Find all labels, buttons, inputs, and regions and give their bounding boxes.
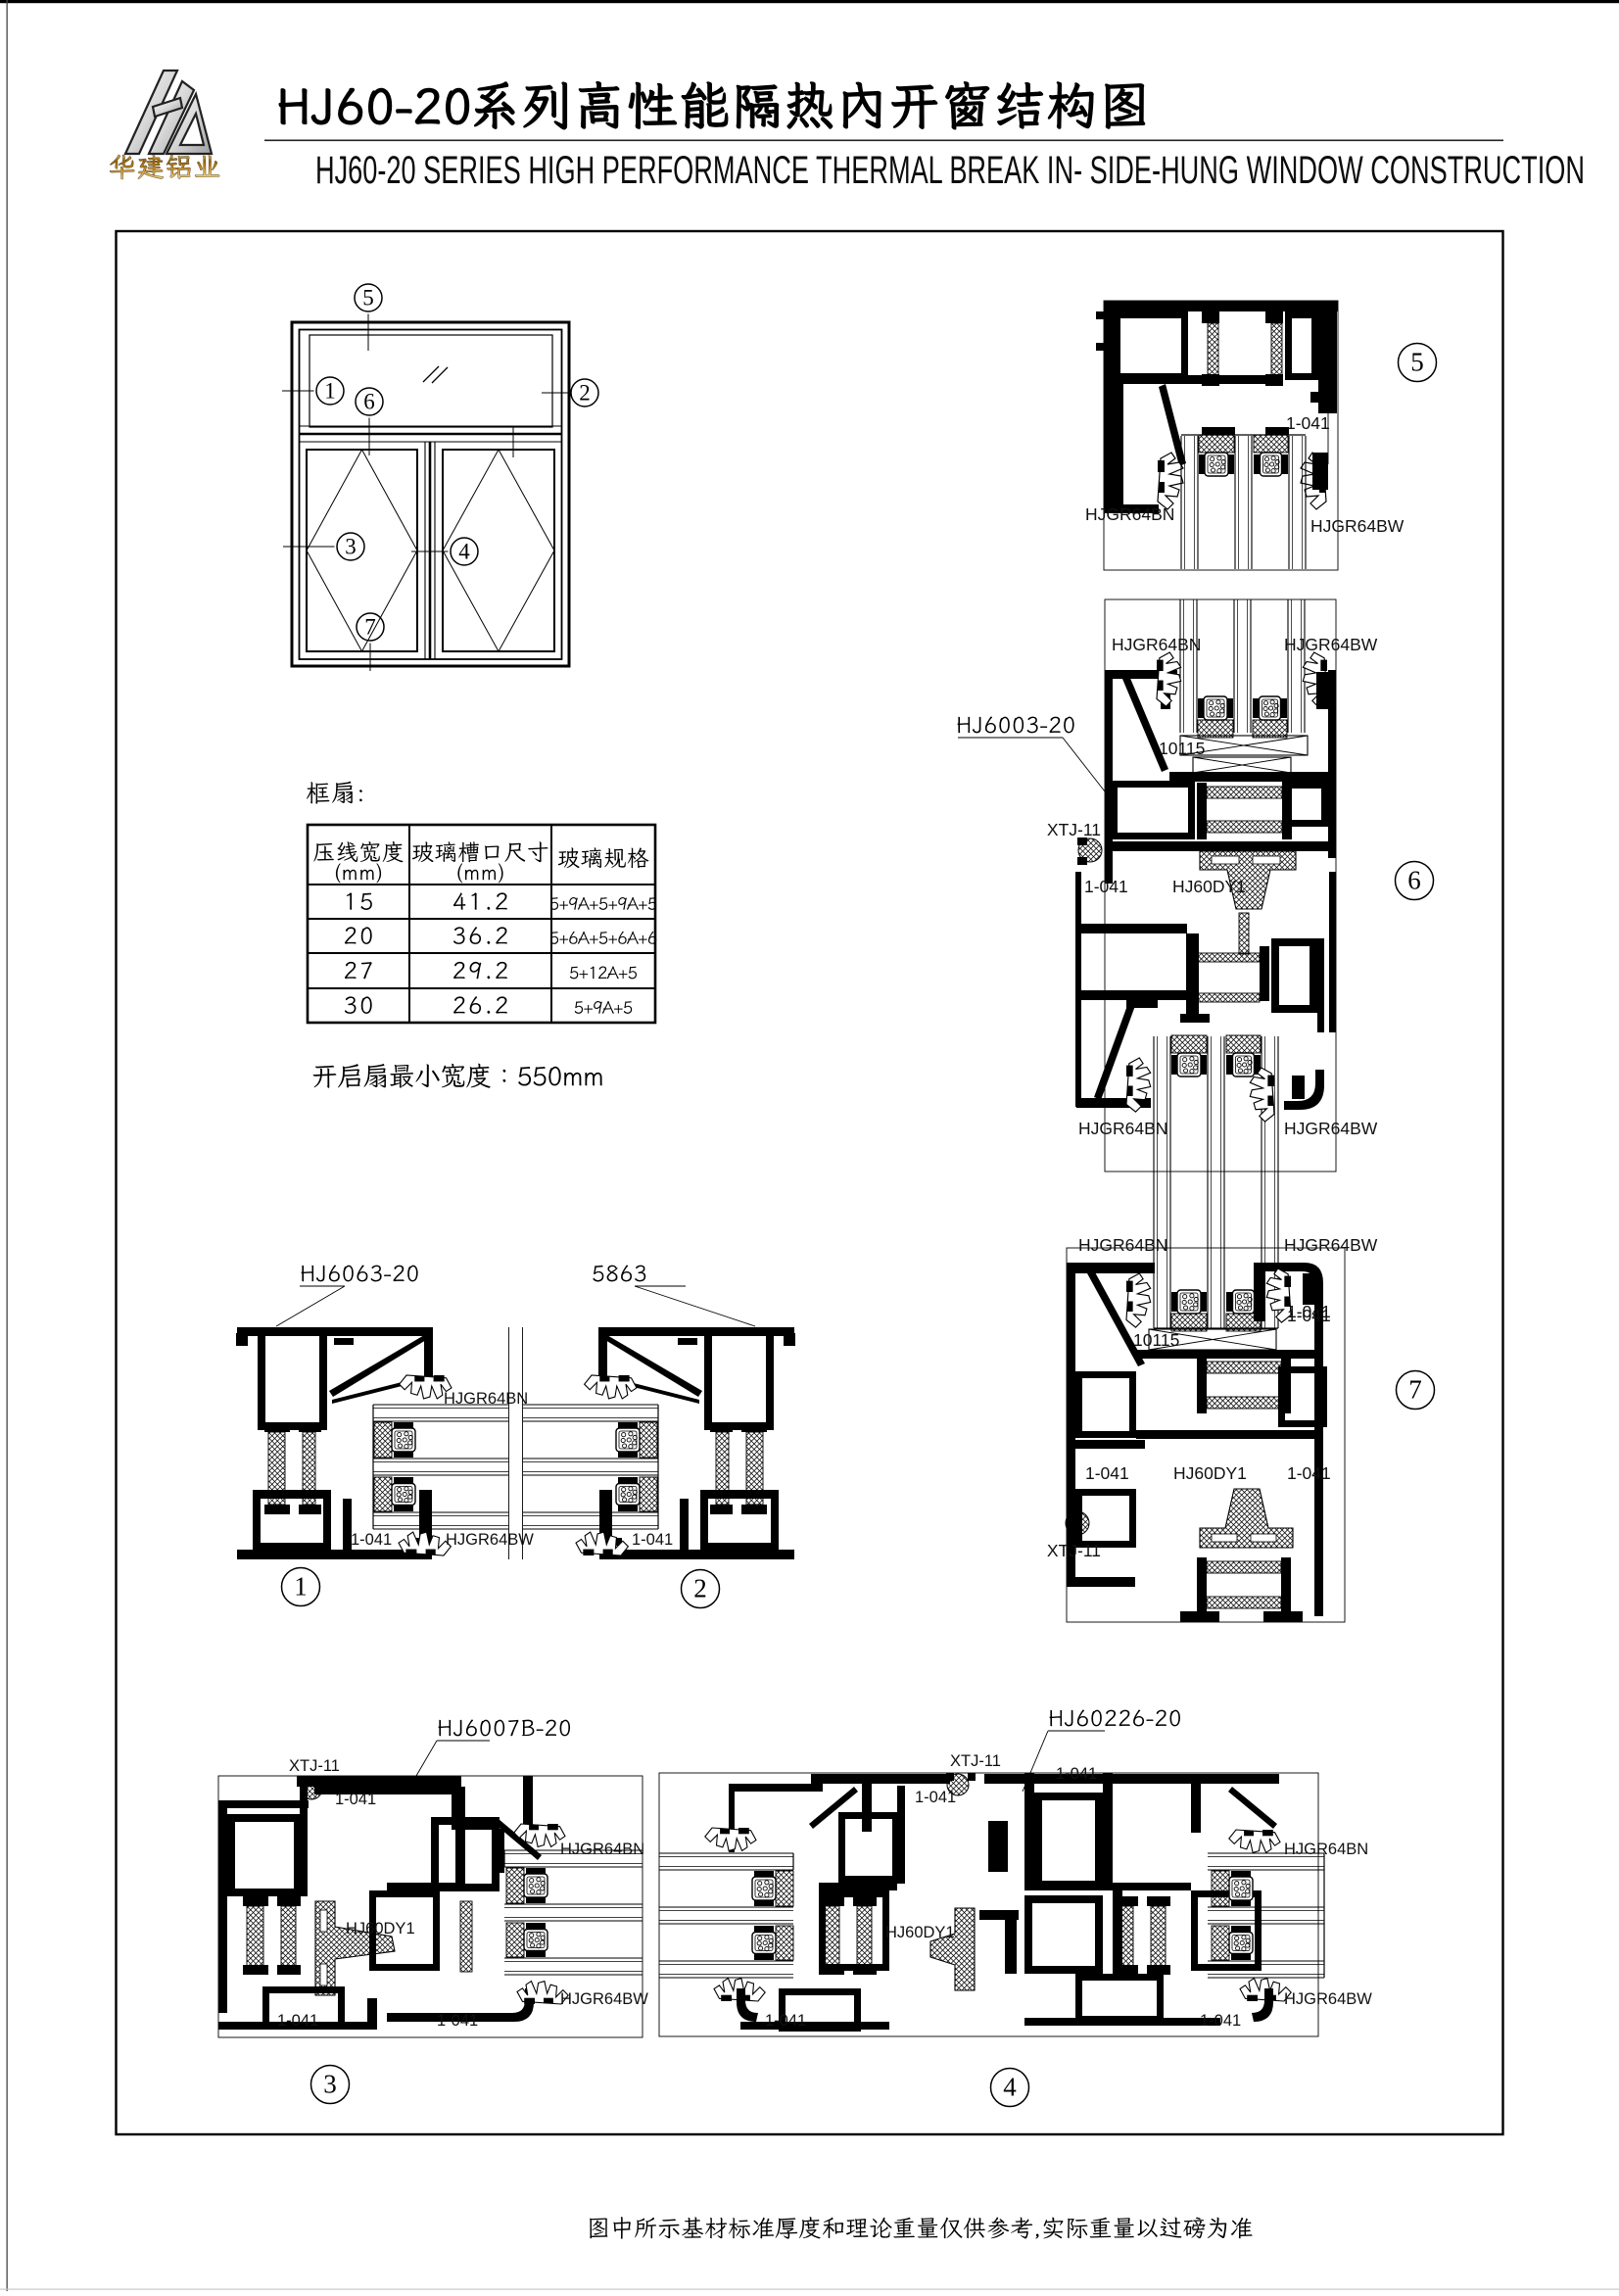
- svg-text:3: 3: [345, 535, 357, 559]
- svg-text:4: 4: [458, 540, 470, 564]
- svg-text:10115: 10115: [1159, 739, 1205, 758]
- svg-text:HJGR64BW: HJGR64BW: [560, 1990, 648, 2008]
- svg-text:HJGR64BW: HJGR64BW: [1284, 1235, 1378, 1255]
- svg-text:1-041: 1-041: [1287, 1306, 1331, 1325]
- svg-text:XTJ-11: XTJ-11: [1047, 1541, 1101, 1560]
- svg-text:2: 2: [693, 1574, 707, 1603]
- svg-text:HJ60DY1: HJ60DY1: [1172, 877, 1246, 896]
- svg-text:1-041: 1-041: [1286, 413, 1330, 433]
- svg-text:HJGR64BN: HJGR64BN: [1078, 1235, 1167, 1255]
- svg-text:3: 3: [323, 2070, 337, 2099]
- svg-text:HJGR64BW: HJGR64BW: [1284, 635, 1378, 654]
- svg-text:4: 4: [1003, 2073, 1017, 2102]
- svg-text:7: 7: [364, 615, 376, 640]
- svg-text:HJGR64BN: HJGR64BN: [1284, 1841, 1368, 1858]
- svg-text:6: 6: [363, 390, 375, 414]
- svg-text:1-041: 1-041: [1200, 2012, 1241, 2030]
- svg-text:HJGR64BN: HJGR64BN: [1078, 1119, 1167, 1138]
- svg-text:5: 5: [1410, 348, 1424, 377]
- svg-text:2: 2: [579, 381, 591, 406]
- svg-text:XTJ-11: XTJ-11: [1047, 820, 1101, 839]
- svg-text:1-041: 1-041: [1085, 1463, 1129, 1483]
- svg-text:5: 5: [362, 286, 374, 311]
- svg-text:1-041: 1-041: [1287, 1463, 1331, 1483]
- svg-text:HJ60DY1: HJ60DY1: [346, 1920, 415, 1937]
- svg-text:1-041: 1-041: [351, 1531, 392, 1549]
- svg-text:1-041: 1-041: [632, 1531, 673, 1549]
- svg-text:HJGR64BW: HJGR64BW: [446, 1531, 534, 1549]
- svg-text:1-041: 1-041: [1056, 1765, 1097, 1783]
- svg-text:1-041: 1-041: [277, 2012, 318, 2030]
- svg-text:HJGR64BN: HJGR64BN: [1112, 635, 1201, 654]
- svg-text:1: 1: [294, 1572, 308, 1602]
- svg-text:HJGR64BN: HJGR64BN: [560, 1841, 644, 1858]
- svg-text:HJGR64BN: HJGR64BN: [444, 1390, 528, 1408]
- svg-text:6: 6: [1407, 866, 1421, 895]
- svg-text:XTJ-11: XTJ-11: [289, 1757, 340, 1775]
- svg-text:1-041: 1-041: [915, 1789, 956, 1806]
- svg-text:1: 1: [324, 379, 336, 404]
- svg-text:HJ60DY1: HJ60DY1: [1173, 1463, 1247, 1483]
- svg-text:XTJ-11: XTJ-11: [950, 1752, 1001, 1770]
- svg-text:HJGR64BW: HJGR64BW: [1310, 516, 1405, 536]
- svg-text:HJGR64BW: HJGR64BW: [1284, 1990, 1372, 2008]
- svg-text:HJ60DY1: HJ60DY1: [885, 1924, 955, 1941]
- svg-text:10115: 10115: [1133, 1330, 1179, 1350]
- svg-text:HJGR64BN: HJGR64BN: [1085, 504, 1174, 524]
- svg-text:1-041: 1-041: [335, 1791, 376, 1808]
- svg-text:1-041: 1-041: [765, 2012, 806, 2030]
- svg-text:7: 7: [1408, 1375, 1422, 1405]
- svg-text:HJ60-20 SERIES HIGH PERFORMANC: HJ60-20 SERIES HIGH PERFORMANCE THERMAL …: [315, 149, 1585, 192]
- svg-text:HJGR64BW: HJGR64BW: [1284, 1119, 1378, 1138]
- svg-text:1-041: 1-041: [1084, 877, 1128, 896]
- svg-text:1-041: 1-041: [437, 2012, 478, 2030]
